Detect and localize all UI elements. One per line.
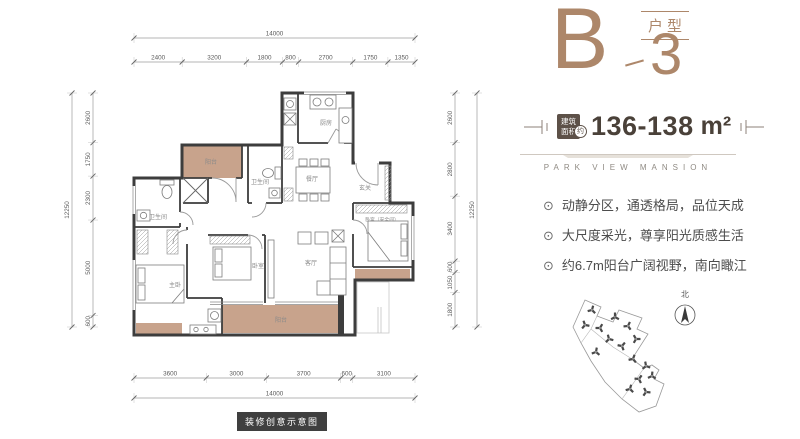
room-label-balcony-top: 阳台 xyxy=(205,158,217,166)
area-tick-left-icon xyxy=(524,119,550,135)
site-boundary xyxy=(573,300,664,412)
divider-trapezoid xyxy=(563,155,693,158)
room-label-foyer: 玄关 xyxy=(359,184,371,192)
floorplan-drawing: 1400024003200180080027001750135036003000… xyxy=(60,20,510,439)
dim-value: 3200 xyxy=(207,55,222,62)
room-label-balcony-bottom: 阳台 xyxy=(275,316,287,324)
dim-value: 1350 xyxy=(394,55,409,62)
dim-value: 2300 xyxy=(85,191,92,206)
dim-value: 1750 xyxy=(85,152,92,167)
bullet-icon: ⊙ xyxy=(543,198,554,213)
dim-value: 2700 xyxy=(319,55,334,62)
feature-text: 大尺度采光，尊享阳光质感生活 xyxy=(562,228,744,243)
dim-chain: 14000 xyxy=(132,31,418,44)
dim-chain: 3600300037006003100 xyxy=(132,371,418,384)
area-unit: m² xyxy=(701,112,732,141)
feature-text: 动静分区，通透格局，品位天成 xyxy=(562,198,744,213)
bullet-icon: ⊙ xyxy=(543,258,554,273)
site-buildings xyxy=(579,305,657,397)
dim-value: 3100 xyxy=(377,371,392,378)
dim-value: 12250 xyxy=(469,201,476,219)
area-badge: 建筑 面积 约 xyxy=(557,114,580,139)
room-label-bath-mid: 卫生间 xyxy=(251,178,269,186)
area-row: 建筑 面积 约 136-138 m² xyxy=(524,111,764,142)
dim-value: 800 xyxy=(285,55,296,62)
room-label-living: 客厅 xyxy=(305,259,317,267)
compass: 北 xyxy=(675,290,695,325)
compass-north-label: 北 xyxy=(681,290,689,299)
compass-needle-icon xyxy=(681,306,689,323)
dim-value: 600 xyxy=(85,316,92,327)
disclaimer-badge: 装修创意示意图 xyxy=(237,412,327,431)
unit-type-number: 3 xyxy=(650,26,682,84)
page: 1400024003200180080027001750135036003000… xyxy=(0,0,800,439)
furniture xyxy=(136,95,408,334)
dim-value: 600 xyxy=(447,261,454,272)
dim-value: 12250 xyxy=(64,201,71,219)
feature-item: ⊙约6.7m阳台广阔视野，南向瞰江 xyxy=(543,255,747,274)
room-label-bedroom-safe: 卧室（安全间） xyxy=(365,216,399,223)
room-label-bath-left: 卫生间 xyxy=(149,213,167,221)
dim-value: 2600 xyxy=(447,110,454,125)
brand-name: PARK VIEW MANSION xyxy=(520,163,736,172)
dim-value: 1800 xyxy=(257,55,272,62)
dim-value: 1800 xyxy=(447,302,454,317)
feature-text: 约6.7m阳台广阔视野，南向瞰江 xyxy=(562,258,747,273)
dim-chain: 26002800340060010501800 xyxy=(447,91,460,330)
area-value: 136-138 xyxy=(591,111,694,142)
dim-chain: 2600175023005000600 xyxy=(85,91,98,330)
room-label-bedroom: 卧室 xyxy=(252,262,264,270)
dim-value: 14000 xyxy=(266,391,284,398)
feature-list: ⊙动静分区，通透格局，品位天成 ⊙大尺度采光，尊享阳光质感生活 ⊙约6.7m阳台… xyxy=(543,195,747,285)
approx-mark: 约 xyxy=(574,125,587,138)
dim-chain: 12250 xyxy=(64,91,77,330)
dim-value: 1750 xyxy=(363,55,378,62)
dim-value: 2400 xyxy=(151,55,166,62)
area-badge-line1: 建筑 xyxy=(561,117,576,126)
shaft-x-mark xyxy=(183,178,208,203)
area-tick-right-icon xyxy=(738,119,764,135)
lobby-area xyxy=(357,282,389,333)
entry-door-gap xyxy=(355,159,379,167)
dimension-lines: 1400024003200180080027001750135036003000… xyxy=(64,31,482,404)
dim-value: 3600 xyxy=(163,371,178,378)
brand-divider xyxy=(520,154,736,158)
bay-right-fill xyxy=(355,269,410,280)
room-label-dining: 餐厅 xyxy=(306,175,318,183)
dim-chain: 12250 xyxy=(469,91,482,330)
dim-value: 1050 xyxy=(447,275,454,290)
room-label-master-bedroom: 主卧 xyxy=(169,281,181,289)
site-plan: 北 xyxy=(535,283,785,435)
dim-value: 2600 xyxy=(85,110,92,125)
dim-value: 2800 xyxy=(447,162,454,177)
feature-item: ⊙动静分区，通透格局，品位天成 xyxy=(543,195,747,214)
dim-value: 600 xyxy=(341,371,352,378)
unit-type-letter: B xyxy=(551,0,608,82)
dim-value: 3400 xyxy=(447,221,454,236)
room-label-kitchen: 厨房 xyxy=(320,119,332,127)
bay-master-fill xyxy=(136,323,182,334)
dim-chain: 14000 xyxy=(132,391,418,404)
dim-chain: 240032001800800270017501350 xyxy=(132,55,418,68)
bullet-icon: ⊙ xyxy=(543,228,554,243)
dim-value: 14000 xyxy=(266,31,284,38)
dim-value: 3700 xyxy=(297,371,312,378)
feature-item: ⊙大尺度采光，尊享阳光质感生活 xyxy=(543,225,747,244)
dim-value: 3000 xyxy=(229,371,244,378)
title-slash xyxy=(625,59,644,66)
dim-value: 5000 xyxy=(85,260,92,275)
